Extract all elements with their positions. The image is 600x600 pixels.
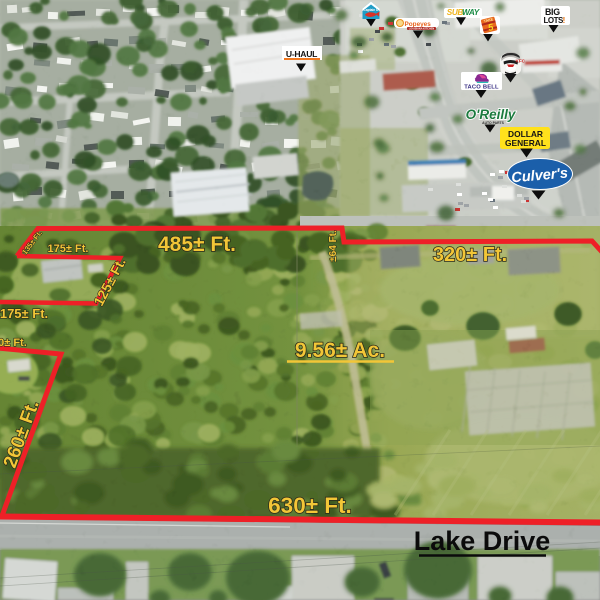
svg-text:70± Ft.: 70± Ft. — [0, 337, 27, 349]
svg-text:TACO BELL: TACO BELL — [464, 85, 499, 91]
svg-text:WAY: WAY — [462, 8, 481, 17]
svg-text:±64 Ft.: ±64 Ft. — [328, 230, 339, 262]
svg-text:Captain D: Captain D — [364, 8, 380, 12]
svg-text:GENERAL: GENERAL — [505, 138, 546, 148]
svg-text:U-HAUL: U-HAUL — [286, 49, 317, 59]
svg-text:175± Ft.: 175± Ft. — [48, 243, 89, 255]
svg-text:320± Ft.: 320± Ft. — [433, 244, 507, 266]
svg-text:!: ! — [563, 15, 566, 25]
svg-text:O'Reilly: O'Reilly — [466, 107, 517, 122]
svg-text:Lake Drive: Lake Drive — [414, 526, 551, 556]
svg-text:SUB: SUB — [447, 8, 464, 17]
svg-text:KFC: KFC — [516, 59, 526, 64]
svg-text:LOTS: LOTS — [544, 16, 564, 25]
svg-text:AUTO PARTS: AUTO PARTS — [482, 121, 504, 125]
svg-text:LOUISIANA KITCHEN: LOUISIANA KITCHEN — [409, 28, 435, 31]
svg-text:485± Ft.: 485± Ft. — [158, 233, 236, 256]
svg-text:630± Ft.: 630± Ft. — [268, 493, 352, 518]
svg-text:175± Ft.: 175± Ft. — [0, 306, 48, 321]
svg-text:9.56± Ac.: 9.56± Ac. — [295, 339, 385, 362]
